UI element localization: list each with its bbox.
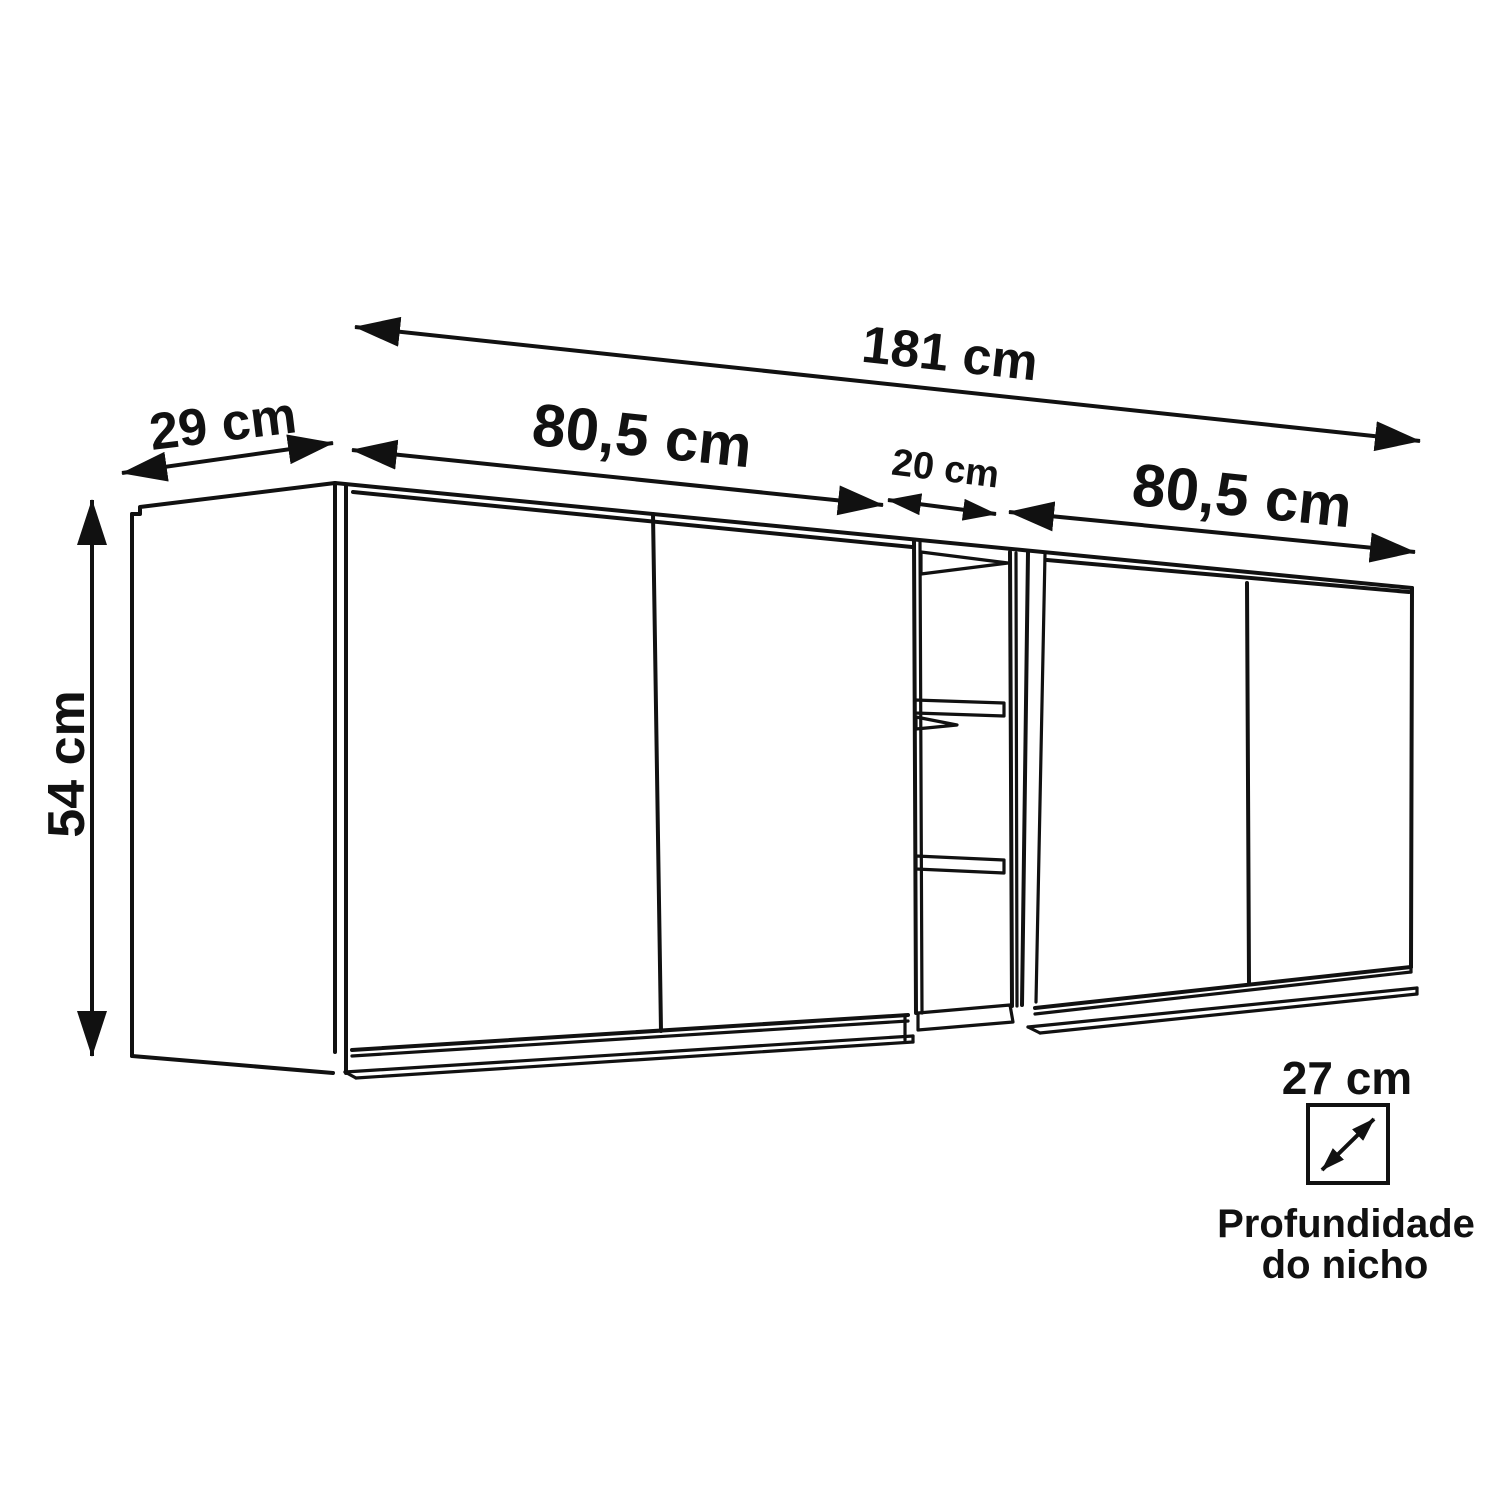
niche-right-wall-outer bbox=[1010, 552, 1012, 1006]
right-module-left-edge-inner bbox=[1036, 554, 1045, 1002]
left-doors-gap bbox=[653, 514, 661, 1031]
cabinet-drawing bbox=[132, 483, 1417, 1078]
right-doors-gap bbox=[1247, 583, 1249, 982]
niche-left-wall-outer bbox=[914, 540, 916, 1013]
niche-top-panel-wedge bbox=[921, 552, 1008, 574]
niche-floor bbox=[918, 1005, 1013, 1030]
left-bottom-board-top bbox=[352, 1021, 908, 1056]
side-panel-bottom-edge bbox=[132, 1056, 333, 1073]
niche-shelf-upper bbox=[915, 700, 1004, 716]
height-label: 54 cm bbox=[38, 690, 96, 837]
left-bottom-board-under bbox=[356, 1042, 913, 1078]
left-doors-bottom-edge bbox=[352, 1015, 908, 1050]
diagram-svg: 181 cm 29 cm 80,5 cm 20 cm 80,5 cm 54 cm… bbox=[0, 0, 1500, 1500]
cabinet-dimension-diagram: 181 cm 29 cm 80,5 cm 20 cm 80,5 cm 54 cm… bbox=[0, 0, 1500, 1500]
niche-right-wall-inner bbox=[1016, 553, 1017, 1006]
right-module-left-edge-outer bbox=[1022, 552, 1028, 1005]
niche-depth-label: 27 cm bbox=[1282, 1052, 1412, 1104]
total-width-label: 181 cm bbox=[859, 316, 1041, 393]
niche-depth-diagonal-arrow bbox=[1322, 1119, 1374, 1170]
niche-width-arrow bbox=[888, 500, 996, 514]
niche-depth-caption-line1: Profundidade bbox=[1217, 1202, 1475, 1246]
dimension-labels: 181 cm 29 cm 80,5 cm 20 cm 80,5 cm 54 cm bbox=[38, 316, 1355, 838]
side-panel-top-edge bbox=[132, 483, 335, 514]
niche-left-wall-inner bbox=[920, 541, 922, 1013]
niche-shelf-lower bbox=[916, 856, 1004, 873]
right-edge bbox=[1411, 588, 1412, 967]
left-bottom-board-bottom bbox=[345, 1036, 913, 1072]
niche-width-label: 20 cm bbox=[889, 442, 1001, 497]
right-doors-top-edge bbox=[1047, 560, 1409, 592]
niche-depth-caption-line2: do nicho bbox=[1262, 1243, 1429, 1287]
niche-depth-legend: 27 cm Profundidade do nicho bbox=[1217, 1052, 1475, 1287]
left-module-width-label: 80,5 cm bbox=[529, 391, 755, 481]
